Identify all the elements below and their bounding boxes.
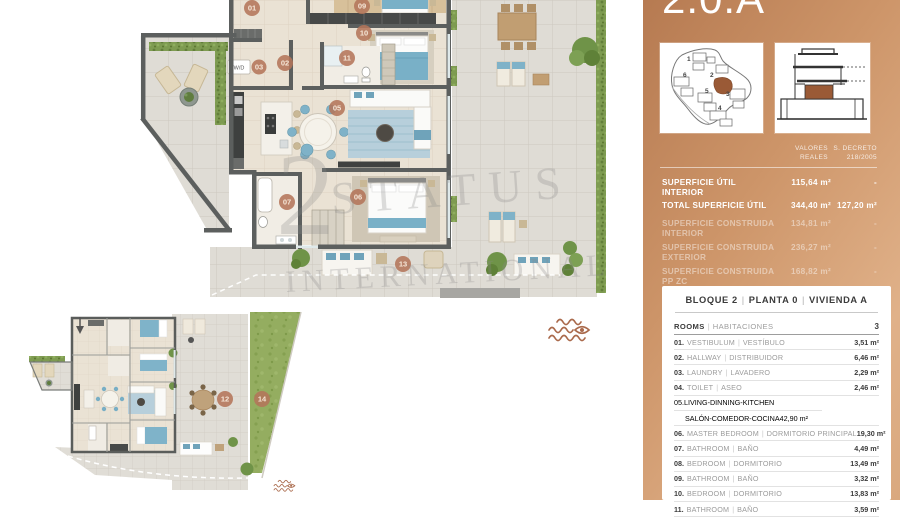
room-label-01: 01: [244, 0, 260, 16]
surface-row: SUPERFICIE ÚTIL INTERIOR115,64 m²-: [662, 178, 877, 198]
column-header-decree: S. DECRETO218/2005: [833, 145, 877, 163]
room-label-14: 14: [254, 391, 270, 407]
hedge-side: [215, 51, 226, 125]
svg-text:12: 12: [221, 395, 229, 404]
unit-identifier: BLOQUE 2|PLANTA 0|VIVIENDA A: [674, 295, 879, 305]
info-panel: 2.0.A 1 2 3 4 5 6: [643, 0, 900, 500]
surface-row: SUPERFICIE CONSTRUIDA EXTERIOR236,27 m²-: [662, 243, 877, 263]
room-row: 04.TOILET|ASEO2,46 m²: [674, 381, 879, 396]
svg-text:3: 3: [726, 91, 730, 98]
overview-floor-plan: 12 14: [29, 312, 301, 491]
site-plan-thumbnail: 1 2 3 4 5 6: [660, 43, 763, 133]
room-row: 11.BATHROOM|BAÑO3,59 m²: [674, 502, 879, 517]
hedge-top: [149, 42, 228, 51]
column-header-real-values: VALORESREALES: [773, 145, 828, 163]
section-drawing: [775, 43, 870, 133]
room-row: 06.MASTER BEDROOM|DORMITORIO PRINCIPAL19…: [674, 426, 879, 441]
svg-text:4: 4: [718, 105, 722, 112]
room-label-03: 03: [252, 60, 267, 75]
room-row: 01.VESTIBULUM|VESTÍBULO3,51 m²: [674, 335, 879, 350]
svg-text:1: 1: [687, 56, 691, 63]
svg-text:2: 2: [710, 72, 714, 79]
svg-text:09: 09: [358, 2, 366, 11]
header-divider: [660, 167, 877, 168]
floor-plan-drawing: W/D: [0, 0, 643, 500]
bed-09: [374, 0, 436, 13]
room-label-12: 12: [217, 391, 233, 407]
floor-plan-sheet: W/D: [0, 0, 643, 500]
outdoor-dining: [498, 4, 536, 50]
room-row: 08.BEDROOM|DORMITORIO13,49 m²: [674, 457, 879, 472]
surface-row: SUPERFICIE CONSTRUIDA INTERIOR134,81 m²-: [662, 219, 877, 239]
surface-row: SUPERFICIE CONSTRUIDA PP ZC168,82 m²-: [662, 267, 877, 287]
svg-text:6: 6: [683, 72, 687, 79]
wd-label: W/D: [234, 66, 245, 72]
surface-row: TOTAL SUPERFICIE ÚTIL344,40 m²127,20 m²: [662, 201, 877, 211]
wardrobe-10: [382, 44, 395, 85]
svg-text:01: 01: [248, 4, 256, 13]
highlighted-floor: [805, 85, 833, 99]
room-row: 09.BATHROOM|BAÑO3,32 m²: [674, 472, 879, 487]
rooms-count: 3: [875, 322, 879, 331]
svg-text:14: 14: [258, 395, 267, 404]
svg-text:10: 10: [360, 29, 368, 38]
room-row: 02.HALLWAY|DISTRIBUIDOR6,46 m²: [674, 350, 879, 365]
unit-title: 2.0.A: [662, 0, 765, 20]
svg-text:02: 02: [281, 59, 289, 68]
wardrobe-corridor: [310, 13, 436, 24]
room-label-11: 11: [339, 50, 355, 66]
rooms-table-header: ROOMS|HABITACIONES3: [674, 322, 879, 335]
svg-text:11: 11: [343, 54, 351, 63]
room-row-two-line: 05.LIVING-DINNING-KITCHEN SALÓN-COMEDOR-…: [674, 396, 879, 426]
room-row: 03.LAUNDRY|LAVADERO2,29 m²: [674, 365, 879, 380]
card-divider: [675, 312, 878, 313]
section-thumbnail: [775, 43, 870, 133]
room-label-02: 02: [277, 55, 293, 71]
room-label-05: 05: [329, 100, 345, 116]
brochure-page: { "panel": { "title": "2.0.A", "surface"…: [0, 0, 900, 500]
room-row: 07.BATHROOM|BAÑO4,49 m²: [674, 441, 879, 456]
room-label-10: 10: [356, 25, 372, 41]
watermark-digit: 2: [276, 129, 335, 260]
unit-details-card: BLOQUE 2|PLANTA 0|VIVIENDA A ROOMS|HABIT…: [662, 286, 891, 500]
svg-text:5: 5: [705, 88, 709, 95]
svg-text:03: 03: [255, 63, 263, 72]
svg-text:05: 05: [333, 104, 341, 113]
site-plan-drawing: 1 2 3 4 5 6: [660, 43, 763, 133]
